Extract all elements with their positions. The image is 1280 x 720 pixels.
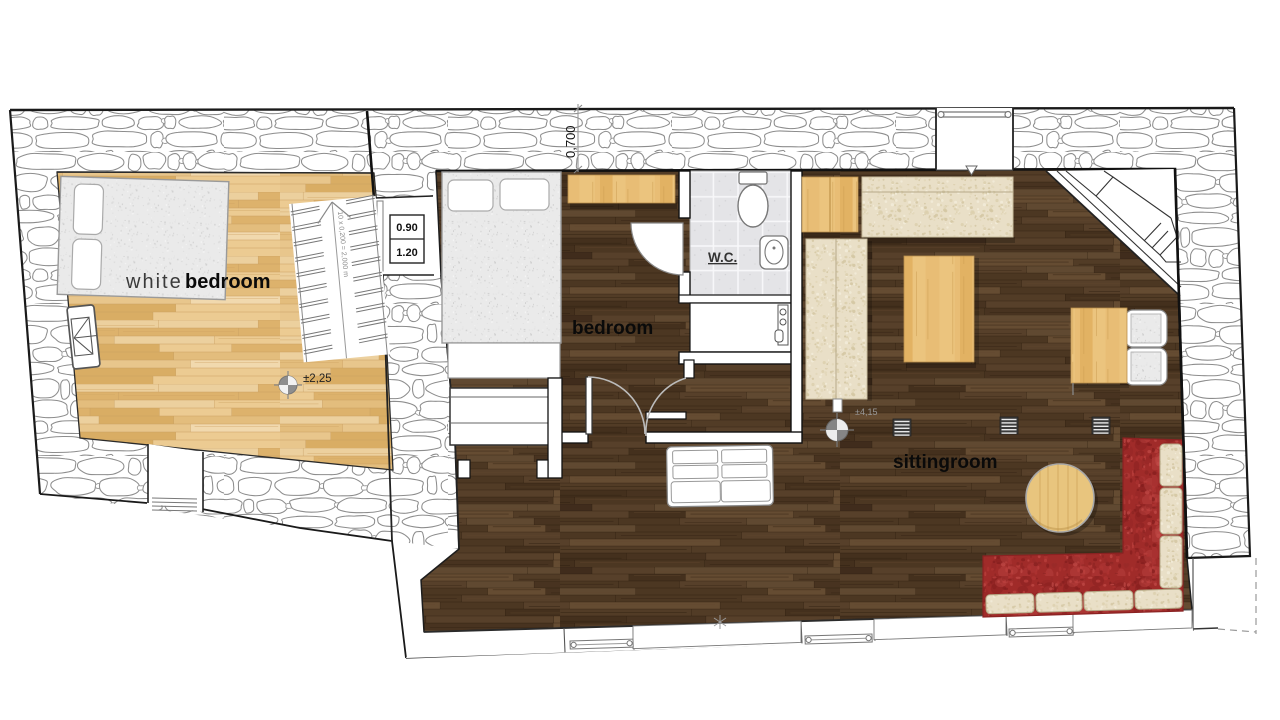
- svg-text:0.90: 0.90: [396, 222, 417, 234]
- svg-text:1.20: 1.20: [396, 247, 417, 259]
- svg-text:0,700: 0,700: [563, 125, 578, 158]
- svg-text:±4,15: ±4,15: [855, 407, 877, 417]
- svg-text:bedroom: bedroom: [185, 271, 271, 293]
- svg-text:bedroom: bedroom: [572, 318, 653, 339]
- svg-text:W.C.: W.C.: [708, 250, 737, 265]
- svg-text:sittingroom: sittingroom: [893, 452, 998, 473]
- svg-text:±2,25: ±2,25: [303, 373, 332, 385]
- svg-text:white: white: [125, 271, 183, 293]
